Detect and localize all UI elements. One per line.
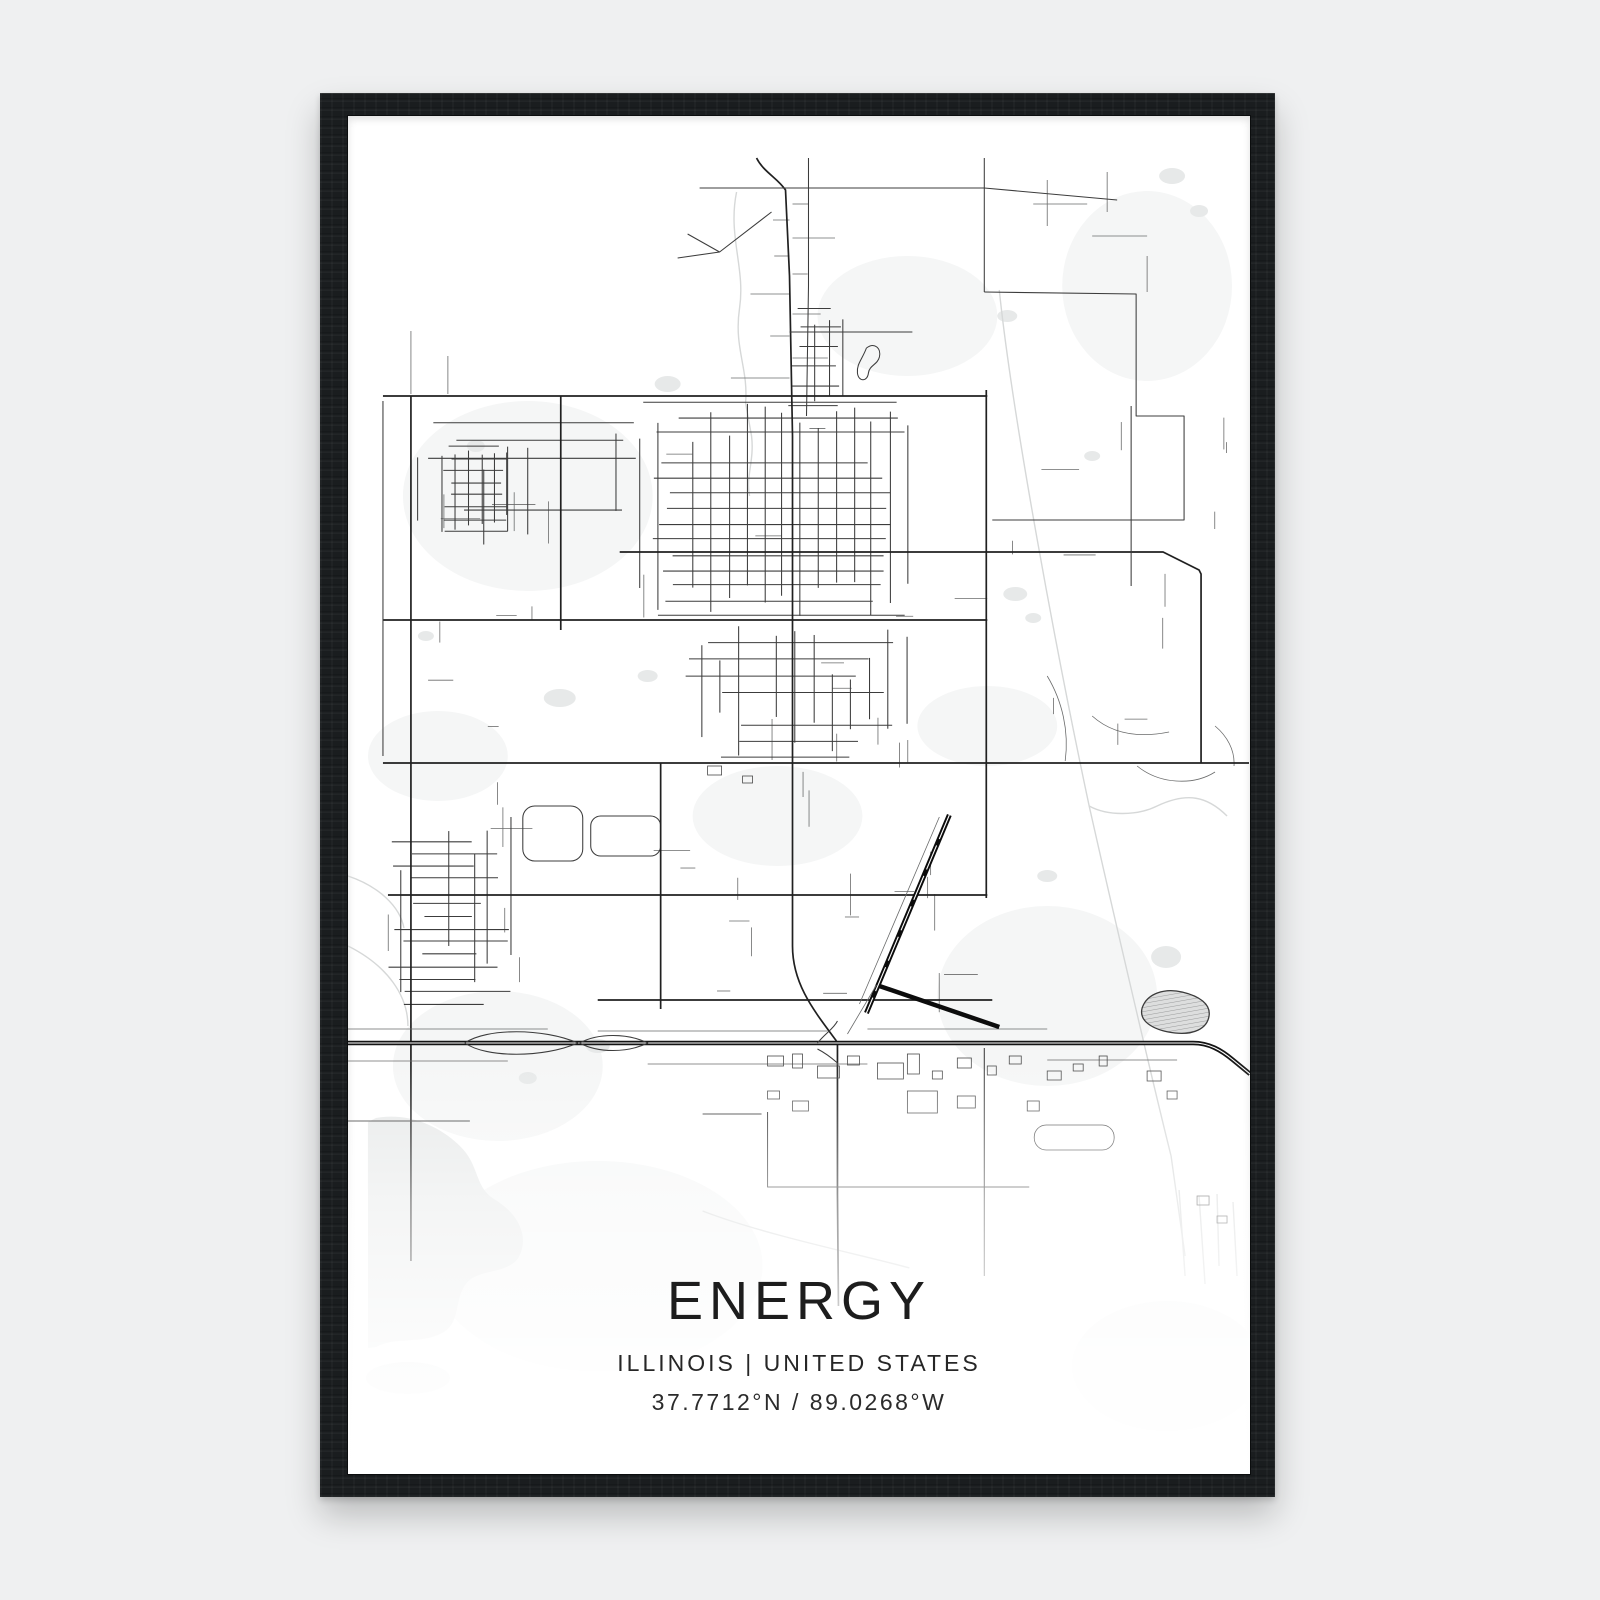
poster-paper: ENERGY ILLINOIS | UNITED STATES 37.7712°… xyxy=(348,116,1250,1474)
poster-subtitle: ILLINOIS | UNITED STATES xyxy=(348,1352,1250,1375)
poster-coordinates: 37.7712°N / 89.0268°W xyxy=(348,1391,1250,1414)
poster-caption: ENERGY ILLINOIS | UNITED STATES 37.7712°… xyxy=(348,1274,1250,1414)
poster-frame: ENERGY ILLINOIS | UNITED STATES 37.7712°… xyxy=(320,93,1275,1497)
poster-title: ENERGY xyxy=(348,1274,1250,1328)
page-background: { "poster": { "title": "ENERGY", "subtit… xyxy=(0,0,1600,1600)
street-grid xyxy=(389,308,908,1004)
